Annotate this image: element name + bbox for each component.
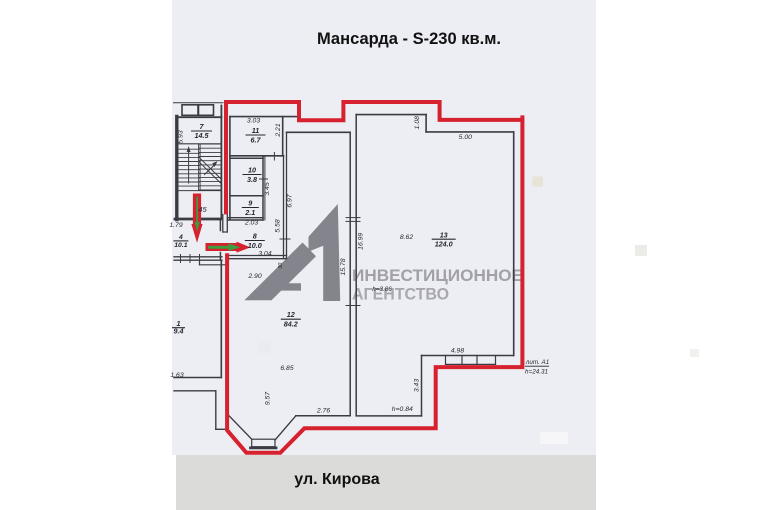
svg-text:10: 10 [248,166,256,175]
svg-text:2.90: 2.90 [247,273,261,280]
svg-text:8.62: 8.62 [400,234,413,241]
svg-text:АГЕНТСТВО: АГЕНТСТВО [352,286,449,304]
svg-text:84.2: 84.2 [284,320,298,329]
svg-text:9: 9 [248,199,252,208]
svg-text:ИНВЕСТИЦИОННОЕ: ИНВЕСТИЦИОННОЕ [352,267,523,285]
svg-text:6.97: 6.97 [287,194,294,207]
svg-text:h=3.86: h=3.86 [372,286,392,293]
svg-text:15.78: 15.78 [340,258,347,275]
svg-text:5.58: 5.58 [275,219,282,232]
svg-text:2.03: 2.03 [244,220,258,227]
svg-text:2.76: 2.76 [316,408,330,415]
svg-text:6.85: 6.85 [280,365,293,372]
svg-text:h=24.31: h=24.31 [525,369,548,376]
svg-text:14.5: 14.5 [195,131,210,140]
svg-text:5.93: 5.93 [178,130,185,143]
svg-text:3.04: 3.04 [258,250,271,257]
svg-text:3.45: 3.45 [264,182,271,195]
svg-text:16.99: 16.99 [358,233,365,250]
svg-text:1.08: 1.08 [414,116,421,129]
svg-text:13: 13 [440,231,448,240]
svg-text:10.1: 10.1 [174,242,187,249]
svg-text:лит. А1: лит. А1 [525,359,549,366]
svg-text:12: 12 [287,310,295,319]
svg-text:3.03: 3.03 [247,118,260,125]
svg-text:45: 45 [198,205,207,214]
svg-text:h=0.84: h=0.84 [392,406,413,413]
svg-text:4: 4 [178,234,183,241]
svg-text:5.00: 5.00 [459,134,472,141]
svg-text:3.8: 3.8 [247,175,257,184]
svg-text:2.21: 2.21 [275,123,282,137]
svg-text:6.7: 6.7 [251,136,262,145]
svg-text:8: 8 [253,232,257,241]
svg-text:3.43: 3.43 [413,379,420,392]
svg-text:1.79: 1.79 [169,222,182,229]
svg-text:30: 30 [278,262,284,269]
svg-text:ул. Кирова: ул. Кирова [294,471,380,488]
svg-text:9.4: 9.4 [174,326,184,335]
svg-text:1.63: 1.63 [170,372,183,379]
svg-text:Мансарда - S-230 кв.м.: Мансарда - S-230 кв.м. [317,30,501,48]
svg-text:124.0: 124.0 [435,240,453,249]
svg-text:11: 11 [252,126,259,135]
svg-text:9.57: 9.57 [265,392,272,405]
svg-text:10.0: 10.0 [248,241,262,250]
svg-text:2.1: 2.1 [244,208,255,217]
svg-text:4.98: 4.98 [451,347,464,354]
